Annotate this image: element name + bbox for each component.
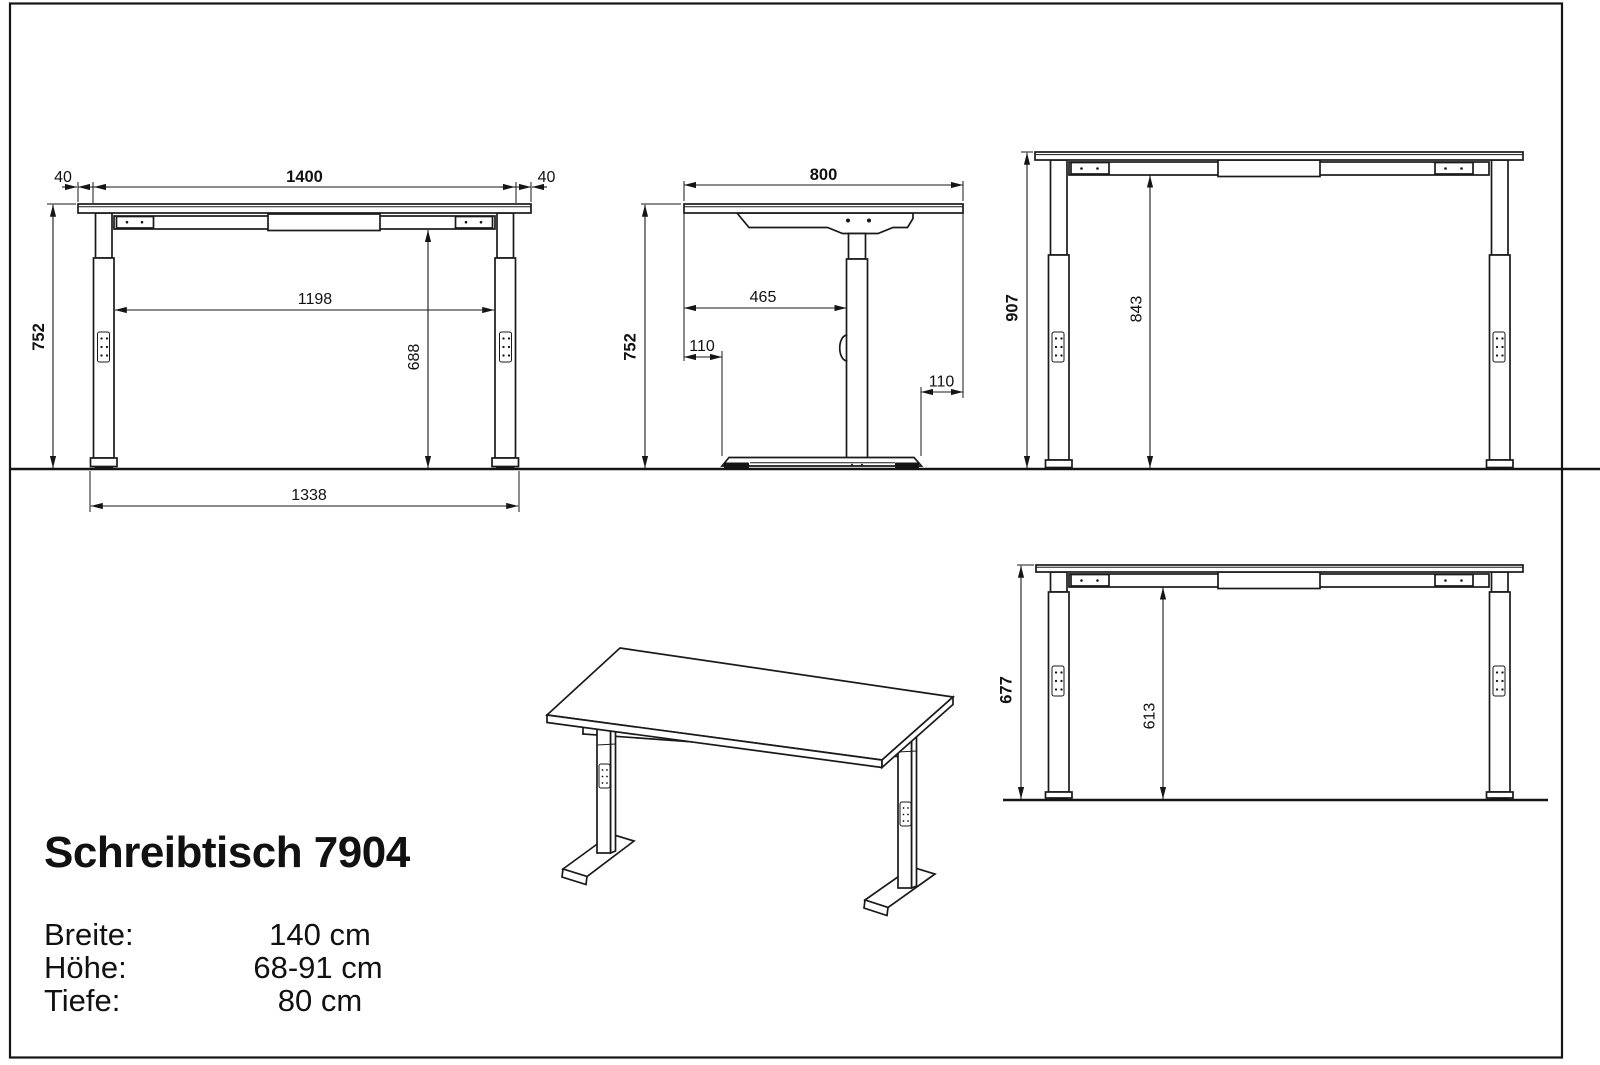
glide	[1491, 467, 1510, 470]
under-frame	[1069, 160, 1489, 177]
tabletop	[684, 204, 963, 213]
under-frame-profile	[737, 213, 913, 234]
foot-pad	[1487, 460, 1514, 468]
leg-left	[91, 213, 118, 470]
view-front: 1400 40 40 752 1198 688	[30, 168, 556, 512]
view-raised: 907 843	[1004, 152, 1524, 470]
leg-right	[1487, 160, 1514, 470]
dim-height-907: 907	[1004, 152, 1034, 468]
view-isometric	[547, 648, 953, 916]
glide-rear	[895, 463, 919, 469]
tabletop	[1035, 152, 1523, 160]
technical-drawing: 1400 40 40 752 1198 688	[0, 0, 1600, 1065]
dim-label-1400: 1400	[286, 168, 323, 186]
dim-label-843: 843	[1129, 296, 1146, 323]
dim-label-1338: 1338	[291, 487, 327, 504]
spec-value: 80 cm	[278, 983, 362, 1018]
dim-depth-800: 800	[684, 166, 963, 201]
foot-pad	[1046, 460, 1073, 468]
bracket-right	[1435, 575, 1473, 587]
dim-overhang-left-40: 40	[54, 169, 109, 203]
dim-label-752-side: 752	[622, 333, 640, 361]
dim-label-40-left: 40	[54, 169, 72, 186]
dim-front-overhang-110: 110	[684, 338, 722, 456]
product-title: Schreibtisch 7904	[44, 828, 411, 877]
dim-label-677: 677	[998, 676, 1016, 704]
dim-clearance-613: 613	[1142, 588, 1164, 800]
leg-left	[1046, 572, 1073, 800]
spec-row-tiefe: Tiefe: 80 cm	[44, 983, 362, 1018]
bracket-right	[1435, 163, 1473, 175]
foot-pad	[1487, 792, 1514, 798]
under-frame	[114, 214, 495, 231]
view-lowered: 677 613	[998, 565, 1549, 800]
glide	[95, 467, 114, 470]
dim-label-110-front: 110	[689, 338, 715, 355]
spec-value: 140 cm	[269, 917, 371, 952]
dim-label-688: 688	[406, 344, 423, 371]
dim-label-1198: 1198	[298, 291, 333, 308]
dim-height-677: 677	[998, 565, 1035, 799]
column	[840, 234, 868, 459]
spec-value: 68-91 cm	[253, 950, 382, 985]
bracket-left	[1071, 163, 1109, 175]
spec-label: Höhe:	[44, 950, 127, 985]
dim-height-752: 752	[30, 204, 76, 468]
glide	[496, 467, 515, 470]
glide	[1050, 467, 1069, 470]
dim-label-800: 800	[810, 166, 838, 184]
dim-label-752: 752	[30, 323, 48, 351]
dim-clearance-843: 843	[1129, 176, 1151, 469]
leg-front-left	[597, 722, 616, 853]
tabletop	[1036, 565, 1523, 572]
spec-label: Breite:	[44, 917, 134, 952]
bracket-left	[117, 217, 154, 229]
under-frame	[1069, 572, 1489, 589]
foot-pad	[91, 458, 118, 467]
glide-front	[724, 463, 749, 469]
dim-foot-span-1338: 1338	[90, 471, 519, 512]
dim-label-613: 613	[1142, 703, 1159, 730]
foot	[722, 458, 922, 469]
bracket-right	[456, 217, 493, 229]
dim-overhang-right-40: 40	[500, 169, 556, 203]
under-frame-center	[1218, 160, 1320, 177]
cable-clip	[840, 335, 847, 361]
spec-row-breite: Breite: 140 cm	[44, 917, 371, 952]
dim-label-110-rear: 110	[929, 374, 955, 391]
under-frame-center	[1218, 572, 1320, 589]
dim-height-752: 752	[622, 204, 682, 468]
dim-label-40-right: 40	[538, 169, 556, 186]
dim-width-1400: 1400	[78, 168, 531, 202]
spec-row-hoehe: Höhe: 68-91 cm	[44, 950, 383, 985]
foot-pad	[492, 458, 519, 467]
dim-setback-465: 465	[684, 289, 847, 308]
view-side: 800 752 465 110 110	[622, 166, 964, 468]
foot-pad	[1046, 792, 1073, 798]
under-frame-center	[268, 214, 380, 231]
dim-label-907: 907	[1004, 294, 1022, 322]
leg-right	[492, 213, 519, 470]
dim-inner-width-1198: 1198	[115, 291, 494, 310]
title-block: Schreibtisch 7904 Breite: 140 cm Höhe: 6…	[44, 828, 411, 1018]
dim-label-465: 465	[750, 289, 777, 306]
tabletop	[78, 204, 531, 213]
spec-label: Tiefe:	[44, 983, 120, 1018]
leg-right	[1487, 572, 1514, 800]
bracket-left	[1071, 575, 1109, 587]
dim-rear-overhang-110: 110	[921, 214, 963, 457]
leg-rear-right	[898, 733, 917, 888]
leg-left	[1046, 160, 1073, 470]
dim-clearance-688: 688	[406, 230, 428, 468]
